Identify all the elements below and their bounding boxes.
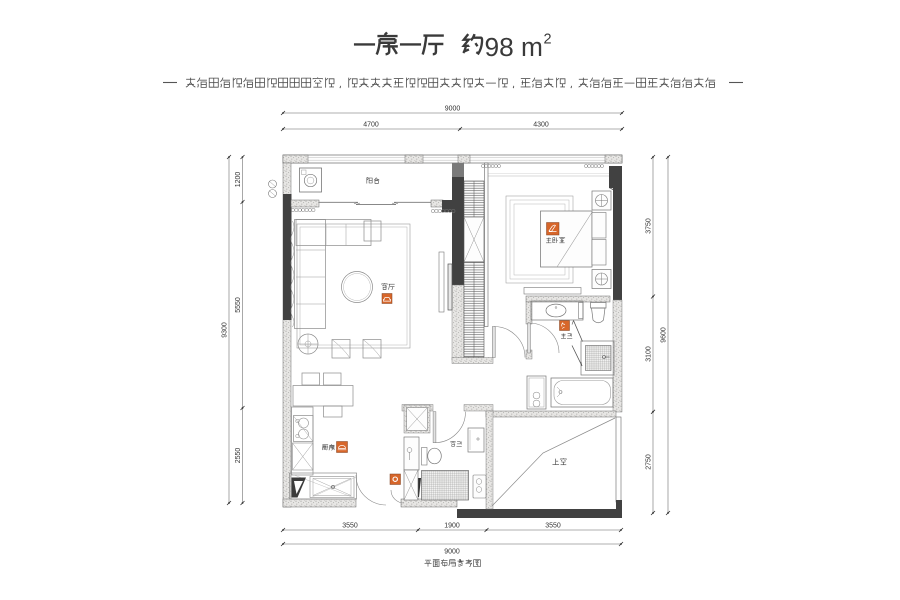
- svg-text:1200: 1200: [235, 172, 242, 188]
- svg-text:9000: 9000: [444, 549, 460, 556]
- svg-text:3550: 3550: [545, 523, 561, 530]
- svg-text:3100: 3100: [646, 346, 653, 362]
- svg-text:2750: 2750: [646, 454, 653, 470]
- svg-text:9000: 9000: [445, 106, 461, 113]
- svg-text:5550: 5550: [235, 297, 242, 313]
- svg-text:9300: 9300: [222, 322, 229, 338]
- svg-text:4300: 4300: [533, 122, 549, 129]
- svg-text:9600: 9600: [661, 327, 668, 343]
- svg-text:4700: 4700: [363, 122, 379, 129]
- svg-text:2: 2: [544, 32, 552, 48]
- svg-text:2550: 2550: [235, 448, 242, 464]
- svg-text:3550: 3550: [342, 523, 358, 530]
- svg-text:98 m: 98 m: [485, 32, 543, 62]
- svg-text:1900: 1900: [444, 523, 460, 530]
- svg-text:3750: 3750: [646, 218, 653, 234]
